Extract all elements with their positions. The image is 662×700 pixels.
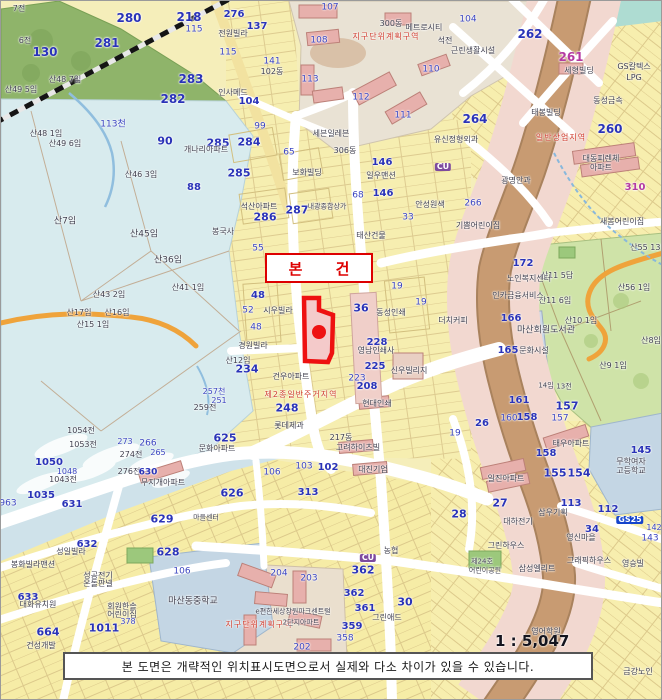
map-canvas — [1, 1, 662, 700]
location-map-page: 7전6전130산48 7임산49 5임산48 1임산49 6임113천90281… — [0, 0, 662, 700]
subject-point — [312, 325, 326, 339]
disclaimer-text: 본 도면은 개략적인 위치표시도면으로서 실제와 다소 차이가 있을 수 있습니… — [122, 658, 534, 675]
subject-callout-label: 본 건 — [275, 258, 364, 279]
map-scale: 1 : 5,047 — [495, 632, 569, 650]
disclaimer-box: 본 도면은 개략적인 위치표시도면으로서 실제와 다소 차이가 있을 수 있습니… — [63, 652, 593, 680]
subject-callout-box: 본 건 — [265, 253, 373, 283]
